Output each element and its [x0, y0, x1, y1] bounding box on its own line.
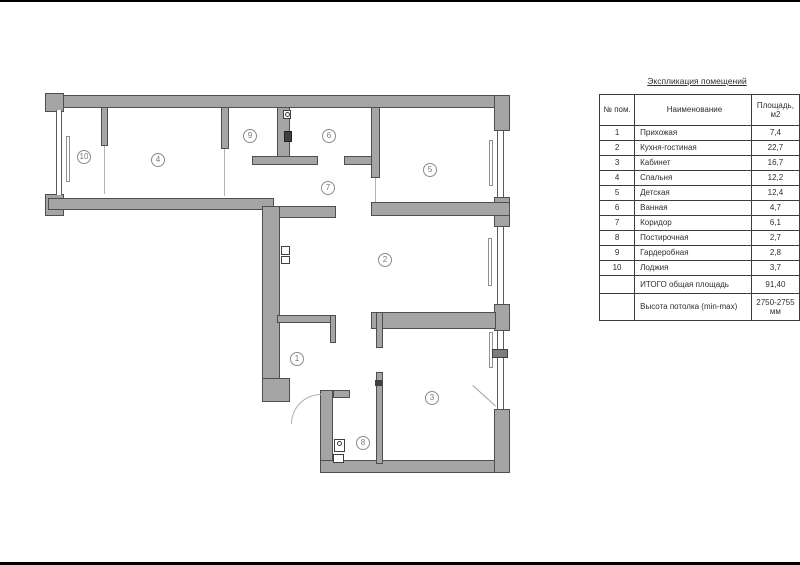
- radiator-loggia: [66, 136, 70, 182]
- wall-bath-bottom-b: [344, 156, 374, 165]
- col-header-area: Площадь, м2: [751, 95, 799, 126]
- sheet-top-border: [0, 0, 800, 2]
- wall-dot-symbol: [375, 380, 382, 386]
- window-loggia: [56, 110, 62, 195]
- wall-bottom: [320, 460, 510, 473]
- wall-hall-jamb: [330, 315, 336, 343]
- dryer-symbol-icon: [333, 454, 344, 463]
- table-row: 10 Лоджия 3,7: [600, 261, 800, 276]
- room-label-study: 3: [425, 391, 439, 405]
- room-label-bathroom: 6: [322, 129, 336, 143]
- table-row: 5 Детская 12,4: [600, 186, 800, 201]
- room-label-laundry: 8: [356, 436, 370, 450]
- total-label: ИТОГО общая площадь: [635, 276, 752, 294]
- col-header-name: Наименование: [635, 95, 752, 126]
- study-window-diagonal: [472, 385, 496, 406]
- panel-symbol-1-icon: [281, 246, 290, 255]
- wall-bedroom-partition: [221, 107, 229, 149]
- total-value: 91,40: [751, 276, 799, 294]
- opening-line-loggia: [104, 146, 105, 194]
- table-row: 1 Прихожая 7,4: [600, 126, 800, 141]
- room-label-corridor: 7: [321, 181, 335, 195]
- table-total-row: ИТОГО общая площадь 91,40: [600, 276, 800, 294]
- table-row: 4 Спальня 12,2: [600, 171, 800, 186]
- window-study: [497, 331, 504, 409]
- wall-laundry-left: [320, 390, 333, 465]
- radiator-children: [489, 140, 493, 186]
- vent-symbol-icon: [492, 349, 508, 358]
- wall-children-bottom: [371, 202, 510, 216]
- wall-bath-bottom-a: [252, 156, 318, 165]
- wall-band-bottom: [48, 198, 274, 210]
- boiler-symbol-icon: [284, 131, 292, 142]
- room-label-hallway: 1: [290, 352, 304, 366]
- shaft-symbol-icon: [283, 110, 291, 119]
- explication-table: № пом. Наименование Площадь, м2 1 Прихож…: [599, 94, 800, 321]
- table-row: 3 Кабинет 16,7: [600, 156, 800, 171]
- room-label-children: 5: [423, 163, 437, 177]
- panel-symbol-2-icon: [281, 256, 290, 264]
- wall-corner-top-right: [494, 95, 510, 131]
- wall-children-left: [371, 107, 380, 178]
- window-children: [497, 131, 504, 197]
- table-row: 6 Ванная 4,7: [600, 201, 800, 216]
- table-row: 2 Кухня-гостиная 22,7: [600, 141, 800, 156]
- window-kitchen: [497, 227, 504, 304]
- wall-loggia-partition: [101, 107, 108, 146]
- wall-hall-kitchen: [277, 315, 336, 323]
- opening-line-bedroom: [224, 149, 225, 196]
- wall-right-pier-2: [494, 304, 510, 331]
- col-header-number: № пом.: [600, 95, 635, 126]
- opening-line-children: [375, 178, 376, 202]
- wall-laundry-top-stub: [333, 390, 350, 398]
- table-ceiling-row: Высота потолка (min-max) 2750-2755 мм: [600, 294, 800, 321]
- wall-hall-left: [262, 206, 280, 386]
- wall-kitchen-bottom: [371, 312, 496, 329]
- room-label-wardrobe: 9: [243, 129, 257, 143]
- table-row: 9 Гардеробная 2,8: [600, 246, 800, 261]
- radiator-kitchen: [488, 238, 492, 286]
- table-row: 8 Постирочная 2,7: [600, 231, 800, 246]
- room-label-loggia: 10: [77, 150, 91, 164]
- washer-symbol-icon: [334, 439, 345, 452]
- wall-study-door-jamb: [376, 312, 383, 348]
- table-title: Экспликация помещений: [597, 76, 797, 86]
- table-header-row: № пом. Наименование Площадь, м2: [600, 95, 800, 126]
- ceiling-label: Высота потолка (min-max): [635, 294, 752, 321]
- wall-entry-block: [262, 378, 290, 402]
- wall-corner-bottom-right: [494, 409, 510, 473]
- table-row: 7 Коридор 6,1: [600, 216, 800, 231]
- room-label-bedroom: 4: [151, 153, 165, 167]
- room-label-kitchen: 2: [378, 253, 392, 267]
- entry-door-arc: [291, 394, 321, 424]
- ceiling-value: 2750-2755 мм: [751, 294, 799, 321]
- drawing-sheet: 10 4 9 6 5 7 2 1 8 3 Экспликация помещен…: [0, 0, 800, 565]
